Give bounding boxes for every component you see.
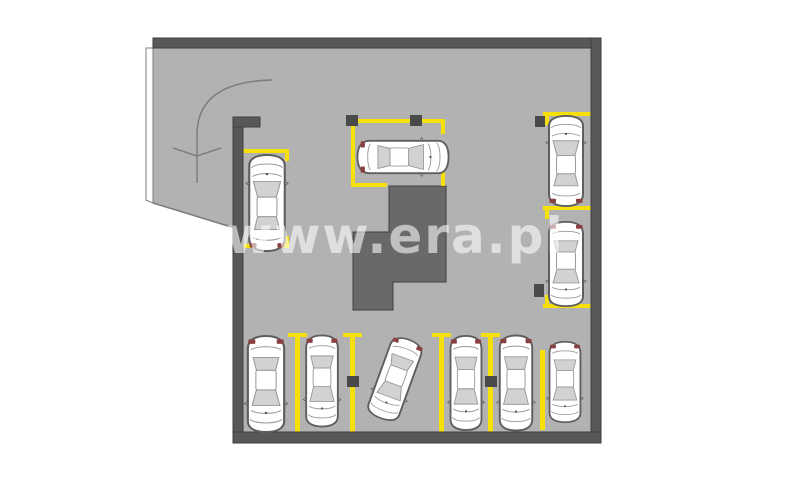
spot-mid-left-bar bbox=[351, 123, 355, 187]
bottom-line-3-bar bbox=[432, 333, 451, 337]
bottom-line-2-bar bbox=[343, 333, 362, 337]
bottom-line-1-stem bbox=[295, 337, 300, 432]
car-bottom-4 bbox=[448, 336, 484, 430]
bottom-line-3-stem bbox=[439, 337, 444, 432]
ramp-edge-strip bbox=[146, 48, 153, 203]
car-left bbox=[246, 155, 288, 251]
spot-mid-bottom-left-bar bbox=[355, 183, 387, 187]
car-right-upper bbox=[546, 116, 586, 206]
car-bottom-2 bbox=[303, 335, 340, 426]
column bbox=[410, 115, 422, 126]
wall-left-stub bbox=[233, 117, 260, 127]
spot-left-top-bar bbox=[243, 149, 289, 153]
wall-right bbox=[591, 38, 601, 443]
car-right-lower bbox=[546, 222, 586, 306]
spot-right-mid-tick bbox=[545, 210, 549, 219]
bottom-line-5-stem bbox=[540, 350, 545, 430]
wall-bottom bbox=[233, 432, 601, 443]
car-bottom-6 bbox=[547, 342, 583, 422]
parking-floor-plan: www.era.pl bbox=[0, 0, 800, 486]
bottom-line-1-bar bbox=[288, 333, 307, 337]
spot-mid-right-tick-top bbox=[441, 123, 445, 134]
floor-plan-drawing bbox=[0, 0, 800, 486]
car-top-middle bbox=[357, 138, 448, 176]
column bbox=[535, 116, 545, 127]
entrance-ramp bbox=[153, 43, 238, 230]
column bbox=[347, 376, 359, 387]
column bbox=[534, 284, 544, 297]
wall-left bbox=[233, 117, 243, 432]
wall-top bbox=[153, 38, 601, 48]
spot-mid-right-tick-bot bbox=[441, 172, 445, 186]
spot-mid-top-bar bbox=[351, 119, 445, 123]
column bbox=[346, 115, 358, 126]
spot-left-top-tick bbox=[285, 153, 289, 161]
car-bottom-1 bbox=[245, 336, 288, 432]
column bbox=[485, 376, 497, 387]
bottom-line-4-bar bbox=[481, 333, 500, 337]
car-bottom-5 bbox=[497, 335, 535, 430]
